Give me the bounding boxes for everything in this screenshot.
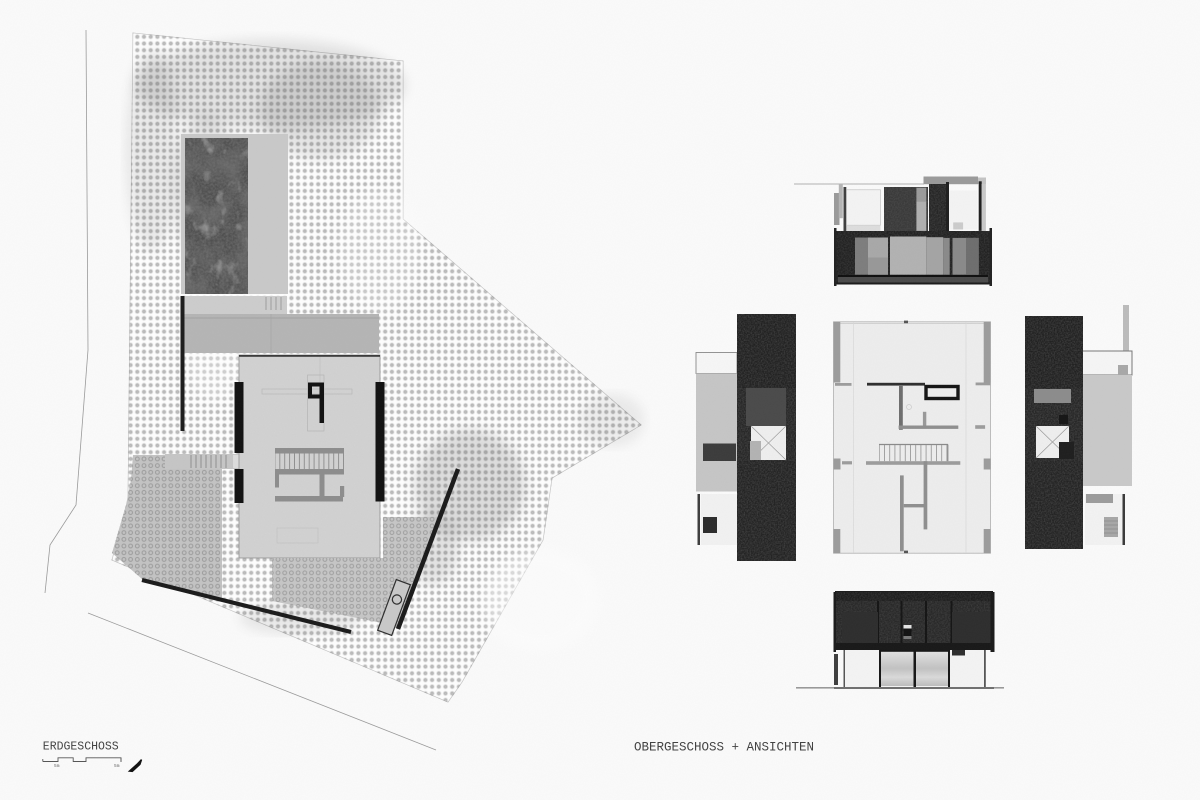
svg-text:5m: 5m xyxy=(114,763,120,769)
svg-text:ERDGESCHOSS: ERDGESCHOSS xyxy=(43,741,119,754)
svg-text:OBERGESCHOSS + ANSICHTEN: OBERGESCHOSS + ANSICHTEN xyxy=(634,740,814,754)
svg-text:5m: 5m xyxy=(54,763,60,769)
